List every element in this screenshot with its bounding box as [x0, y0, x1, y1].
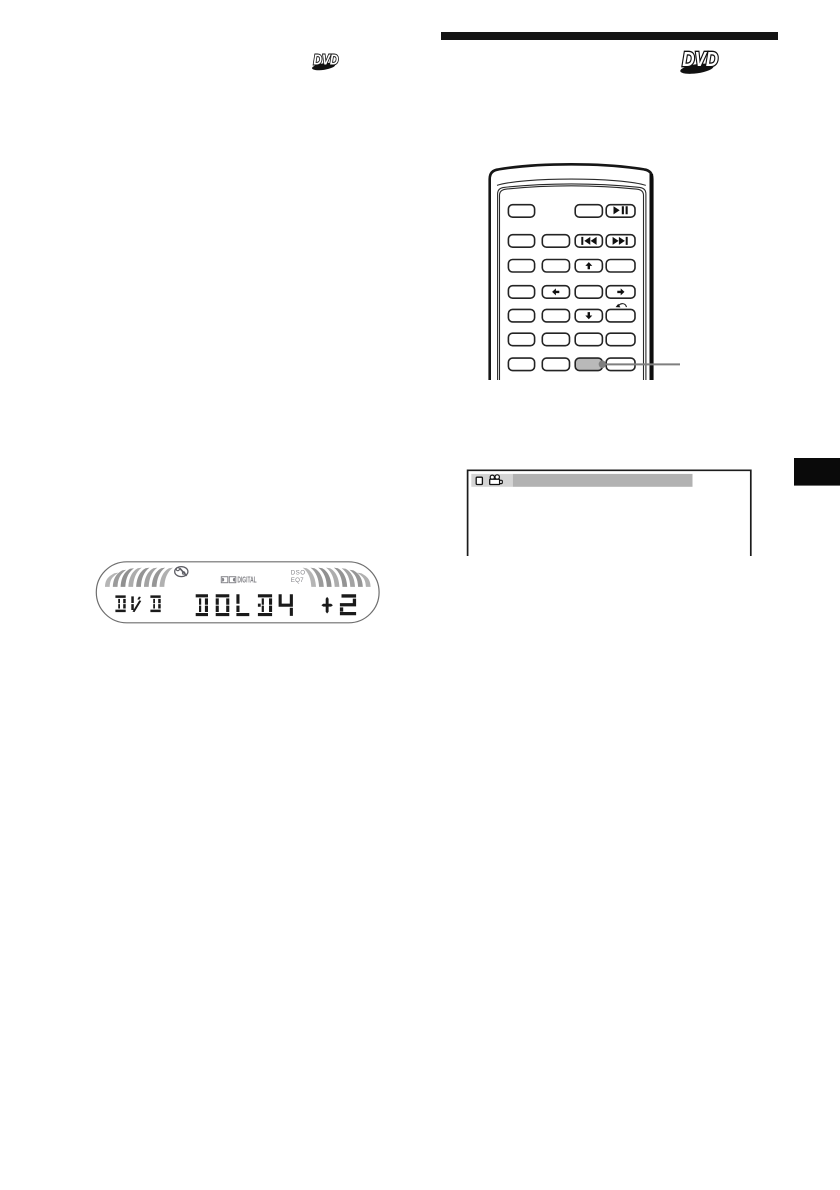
svg-text:DVD: DVD [313, 52, 338, 68]
svg-text:DIGITAL: DIGITAL [237, 577, 256, 585]
svg-text:DVD: DVD [682, 48, 718, 71]
svg-text:EQ7: EQ7 [291, 577, 304, 584]
svg-text:DSO: DSO [291, 569, 306, 576]
